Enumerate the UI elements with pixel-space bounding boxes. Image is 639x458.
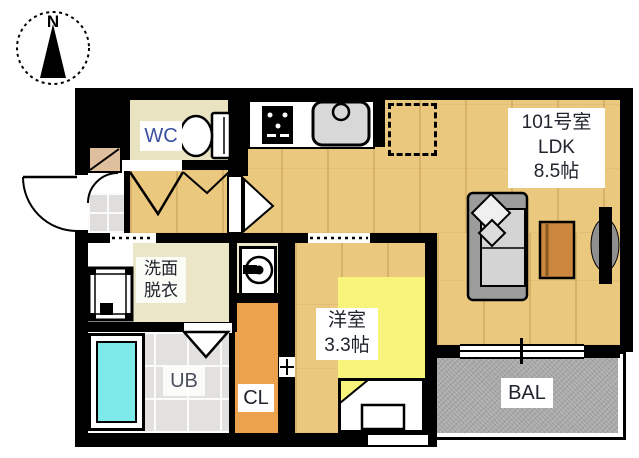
ub-label-text: UB xyxy=(163,368,205,394)
bathtub-water xyxy=(96,341,137,423)
entrance-door xyxy=(23,177,77,231)
wall xyxy=(425,233,437,445)
unit-type: LDK xyxy=(508,136,605,161)
ub-door-opening xyxy=(184,323,232,333)
wall xyxy=(229,243,237,332)
kitchen-counter xyxy=(248,100,375,149)
bal-label: BAL xyxy=(501,378,553,408)
unit-number: 101号室 xyxy=(508,111,605,136)
cl-label: CL xyxy=(238,384,274,412)
wall xyxy=(124,162,130,233)
senmen-line1: 洗面 xyxy=(136,258,186,280)
wall xyxy=(620,88,633,352)
compass-north-icon: N xyxy=(17,12,89,84)
shoe-cabinet-icon xyxy=(88,146,122,173)
unit-size: 8.5帖 xyxy=(508,160,605,185)
wc-label-text: WC xyxy=(140,123,182,149)
compass-label: N xyxy=(47,12,59,31)
senmen-door-opening xyxy=(110,233,156,243)
wc-label: WC xyxy=(140,121,182,151)
cl-label-text: CL xyxy=(238,385,274,411)
bed-icon xyxy=(338,378,425,433)
wall xyxy=(182,160,235,170)
yoshitsu-line2: 3.3帖 xyxy=(316,334,378,359)
floor-plan: N xyxy=(0,0,639,458)
wall xyxy=(75,233,295,243)
senmen-line2: 脱衣 xyxy=(136,280,186,302)
window xyxy=(368,433,428,447)
washer-area xyxy=(88,243,133,323)
unit-label: 101号室 LDK 8.5帖 xyxy=(508,108,605,188)
ub-label: UB xyxy=(163,366,205,396)
room-cl xyxy=(233,303,278,433)
refrigerator-space xyxy=(388,103,437,156)
washbasin-icon xyxy=(239,246,277,296)
wall xyxy=(229,332,235,433)
senmen-label: 洗面 脱衣 xyxy=(136,257,186,303)
cl-door-opening xyxy=(279,357,295,377)
bal-label-text: BAL xyxy=(501,380,553,406)
sliding-window-handle xyxy=(520,338,523,364)
yoshitsu-door-opening xyxy=(308,233,370,243)
yoshitsu-line1: 洋室 xyxy=(316,309,378,334)
wall xyxy=(75,88,633,100)
room-ldk-lower xyxy=(437,233,620,345)
wall xyxy=(278,233,295,447)
hallway xyxy=(130,164,235,233)
entrance-tiles xyxy=(88,193,126,233)
yoshitsu-label: 洋室 3.3帖 xyxy=(316,308,378,360)
wall xyxy=(75,230,88,447)
wall xyxy=(75,88,88,175)
